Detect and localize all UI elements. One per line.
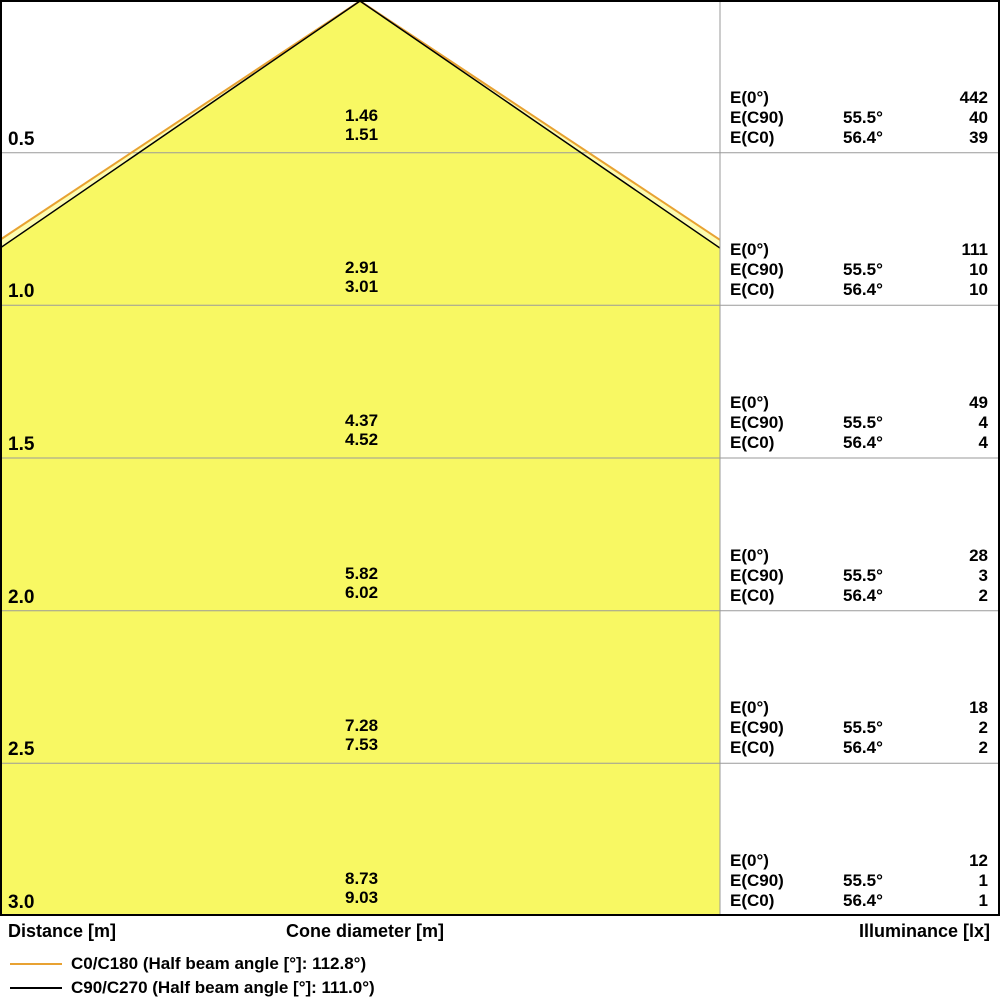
illuminance-line-e0: E(0°) 18 <box>730 698 988 718</box>
cone-diameter-c0: 7.53 <box>345 735 378 754</box>
illuminance-value: 3 <box>923 566 988 586</box>
illuminance-line-ec90: E(C90) 55.5° 4 <box>730 413 988 433</box>
illuminance-value: 10 <box>923 280 988 300</box>
cone-diameter-values: 1.46 1.51 <box>345 106 378 144</box>
illuminance-label: E(C90) <box>730 718 843 738</box>
illuminance-line-ec0: E(C0) 56.4° 2 <box>730 586 988 606</box>
illuminance-value: 40 <box>923 108 988 128</box>
cone-diameter-c90: 5.82 <box>345 564 378 583</box>
illuminance-line-ec0: E(C0) 56.4° 39 <box>730 128 988 148</box>
illuminance-line-ec90: E(C90) 55.5° 10 <box>730 260 988 280</box>
illuminance-line-e0: E(0°) 49 <box>730 393 988 413</box>
illuminance-value: 2 <box>923 738 988 758</box>
legend-item-c0-c180: C0/C180 (Half beam angle [°]: 112.8°) <box>10 954 366 974</box>
illuminance-block: E(0°) 442 E(C90) 55.5° 40 E(C0) 56.4° 39 <box>730 88 988 148</box>
distance-row-1.5: 1.5 4.37 4.52 E(0°) 49 E(C90) 55.5° 4 E(… <box>0 305 1000 458</box>
illuminance-value: 39 <box>923 128 988 148</box>
illuminance-label: E(0°) <box>730 393 843 413</box>
beam-angle-value <box>843 240 923 260</box>
illuminance-line-ec0: E(C0) 56.4° 10 <box>730 280 988 300</box>
illuminance-label: E(C0) <box>730 586 843 606</box>
illuminance-label: E(C0) <box>730 128 843 148</box>
beam-angle-value: 56.4° <box>843 738 923 758</box>
illuminance-line-ec90: E(C90) 55.5° 1 <box>730 871 988 891</box>
illuminance-block: E(0°) 49 E(C90) 55.5° 4 E(C0) 56.4° 4 <box>730 393 988 453</box>
illuminance-value: 2 <box>923 718 988 738</box>
illuminance-label: E(0°) <box>730 546 843 566</box>
beam-angle-value <box>843 393 923 413</box>
illuminance-line-e0: E(0°) 28 <box>730 546 988 566</box>
cone-diameter-c90: 4.37 <box>345 411 378 430</box>
beam-angle-value: 55.5° <box>843 566 923 586</box>
illuminance-label: E(C0) <box>730 433 843 453</box>
illuminance-label: E(C0) <box>730 738 843 758</box>
cone-diameter-values: 7.28 7.53 <box>345 716 378 754</box>
beam-angle-value: 55.5° <box>843 260 923 280</box>
distance-row-0.5: 0.5 1.46 1.51 E(0°) 442 E(C90) 55.5° 40 … <box>0 0 1000 153</box>
distance-label: 3.0 <box>8 893 34 913</box>
cone-diameter-c0: 3.01 <box>345 277 378 296</box>
beam-angle-value <box>843 88 923 108</box>
illuminance-block: E(0°) 18 E(C90) 55.5° 2 E(C0) 56.4° 2 <box>730 698 988 758</box>
illuminance-label: E(C90) <box>730 260 843 280</box>
illuminance-value: 12 <box>923 851 988 871</box>
cone-diameter-c90: 7.28 <box>345 716 378 735</box>
illuminance-label: E(C90) <box>730 413 843 433</box>
cone-diameter-c0: 9.03 <box>345 888 378 907</box>
illuminance-block: E(0°) 12 E(C90) 55.5° 1 E(C0) 56.4° 1 <box>730 851 988 911</box>
illuminance-line-ec90: E(C90) 55.5° 40 <box>730 108 988 128</box>
cone-diameter-values: 2.91 3.01 <box>345 258 378 296</box>
illuminance-label: E(0°) <box>730 851 843 871</box>
illuminance-block: E(0°) 111 E(C90) 55.5° 10 E(C0) 56.4° 10 <box>730 240 988 300</box>
cone-diameter-c0: 1.51 <box>345 125 378 144</box>
beam-angle-value: 56.4° <box>843 891 923 911</box>
distance-row-3.0: 3.0 8.73 9.03 E(0°) 12 E(C90) 55.5° 1 E(… <box>0 763 1000 916</box>
distance-label: 0.5 <box>8 130 34 150</box>
legend-label-c0: C0/C180 (Half beam angle [°]: 112.8°) <box>71 954 366 974</box>
legend-item-c90-c270: C90/C270 (Half beam angle [°]: 111.0°) <box>10 978 375 998</box>
illuminance-block: E(0°) 28 E(C90) 55.5° 3 E(C0) 56.4° 2 <box>730 546 988 606</box>
illuminance-value: 18 <box>923 698 988 718</box>
distance-row-2.0: 2.0 5.82 6.02 E(0°) 28 E(C90) 55.5° 3 E(… <box>0 458 1000 611</box>
illuminance-line-e0: E(0°) 12 <box>730 851 988 871</box>
illuminance-label: E(C90) <box>730 108 843 128</box>
beam-angle-value: 55.5° <box>843 413 923 433</box>
cone-diameter-c0: 6.02 <box>345 583 378 602</box>
illuminance-value: 1 <box>923 871 988 891</box>
cone-diameter-c0: 4.52 <box>345 430 378 449</box>
beam-angle-value: 55.5° <box>843 718 923 738</box>
beam-angle-value: 56.4° <box>843 128 923 148</box>
luminous-cone-diagram: 0.5 1.46 1.51 E(0°) 442 E(C90) 55.5° 40 … <box>0 0 1000 1000</box>
cone-diameter-c90: 8.73 <box>345 869 378 888</box>
illuminance-line-e0: E(0°) 111 <box>730 240 988 260</box>
illuminance-line-ec90: E(C90) 55.5° 2 <box>730 718 988 738</box>
axis-label-illuminance: Illuminance [lx] <box>859 921 990 941</box>
beam-angle-value <box>843 698 923 718</box>
illuminance-label: E(0°) <box>730 698 843 718</box>
illuminance-line-ec90: E(C90) 55.5° 3 <box>730 566 988 586</box>
illuminance-label: E(C0) <box>730 891 843 911</box>
distance-row-1.0: 1.0 2.91 3.01 E(0°) 111 E(C90) 55.5° 10 … <box>0 153 1000 306</box>
illuminance-label: E(C90) <box>730 566 843 586</box>
illuminance-label: E(C0) <box>730 280 843 300</box>
distance-label: 1.5 <box>8 435 34 455</box>
distance-row-2.5: 2.5 7.28 7.53 E(0°) 18 E(C90) 55.5° 2 E(… <box>0 611 1000 764</box>
illuminance-line-ec0: E(C0) 56.4° 2 <box>730 738 988 758</box>
illuminance-label: E(0°) <box>730 240 843 260</box>
x-axis-label-distance: Distance [m] <box>8 921 116 941</box>
illuminance-value: 111 <box>923 240 988 260</box>
beam-angle-value: 56.4° <box>843 586 923 606</box>
cone-diameter-values: 5.82 6.02 <box>345 564 378 602</box>
legend-label-c90: C90/C270 (Half beam angle [°]: 111.0°) <box>71 978 375 998</box>
beam-angle-value <box>843 851 923 871</box>
illuminance-line-e0: E(0°) 442 <box>730 88 988 108</box>
illuminance-value: 4 <box>923 413 988 433</box>
cone-diameter-c90: 2.91 <box>345 258 378 277</box>
illuminance-value: 2 <box>923 586 988 606</box>
beam-angle-value <box>843 546 923 566</box>
illuminance-value: 4 <box>923 433 988 453</box>
illuminance-line-ec0: E(C0) 56.4° 1 <box>730 891 988 911</box>
beam-angle-value: 55.5° <box>843 871 923 891</box>
cone-diameter-values: 8.73 9.03 <box>345 869 378 907</box>
axis-label-cone-diameter: Cone diameter [m] <box>260 921 470 941</box>
legend-line-swatch-c0 <box>10 963 62 965</box>
beam-angle-value: 55.5° <box>843 108 923 128</box>
illuminance-value: 28 <box>923 546 988 566</box>
distance-label: 2.5 <box>8 740 34 760</box>
legend-line-swatch-c90 <box>10 987 62 989</box>
distance-label: 2.0 <box>8 588 34 608</box>
beam-angle-value: 56.4° <box>843 433 923 453</box>
illuminance-value: 49 <box>923 393 988 413</box>
cone-diameter-c90: 1.46 <box>345 106 378 125</box>
illuminance-value: 1 <box>923 891 988 911</box>
illuminance-value: 442 <box>923 88 988 108</box>
illuminance-label: E(0°) <box>730 88 843 108</box>
illuminance-line-ec0: E(C0) 56.4° 4 <box>730 433 988 453</box>
illuminance-value: 10 <box>923 260 988 280</box>
cone-diameter-values: 4.37 4.52 <box>345 411 378 449</box>
distance-label: 1.0 <box>8 282 34 302</box>
illuminance-label: E(C90) <box>730 871 843 891</box>
beam-angle-value: 56.4° <box>843 280 923 300</box>
